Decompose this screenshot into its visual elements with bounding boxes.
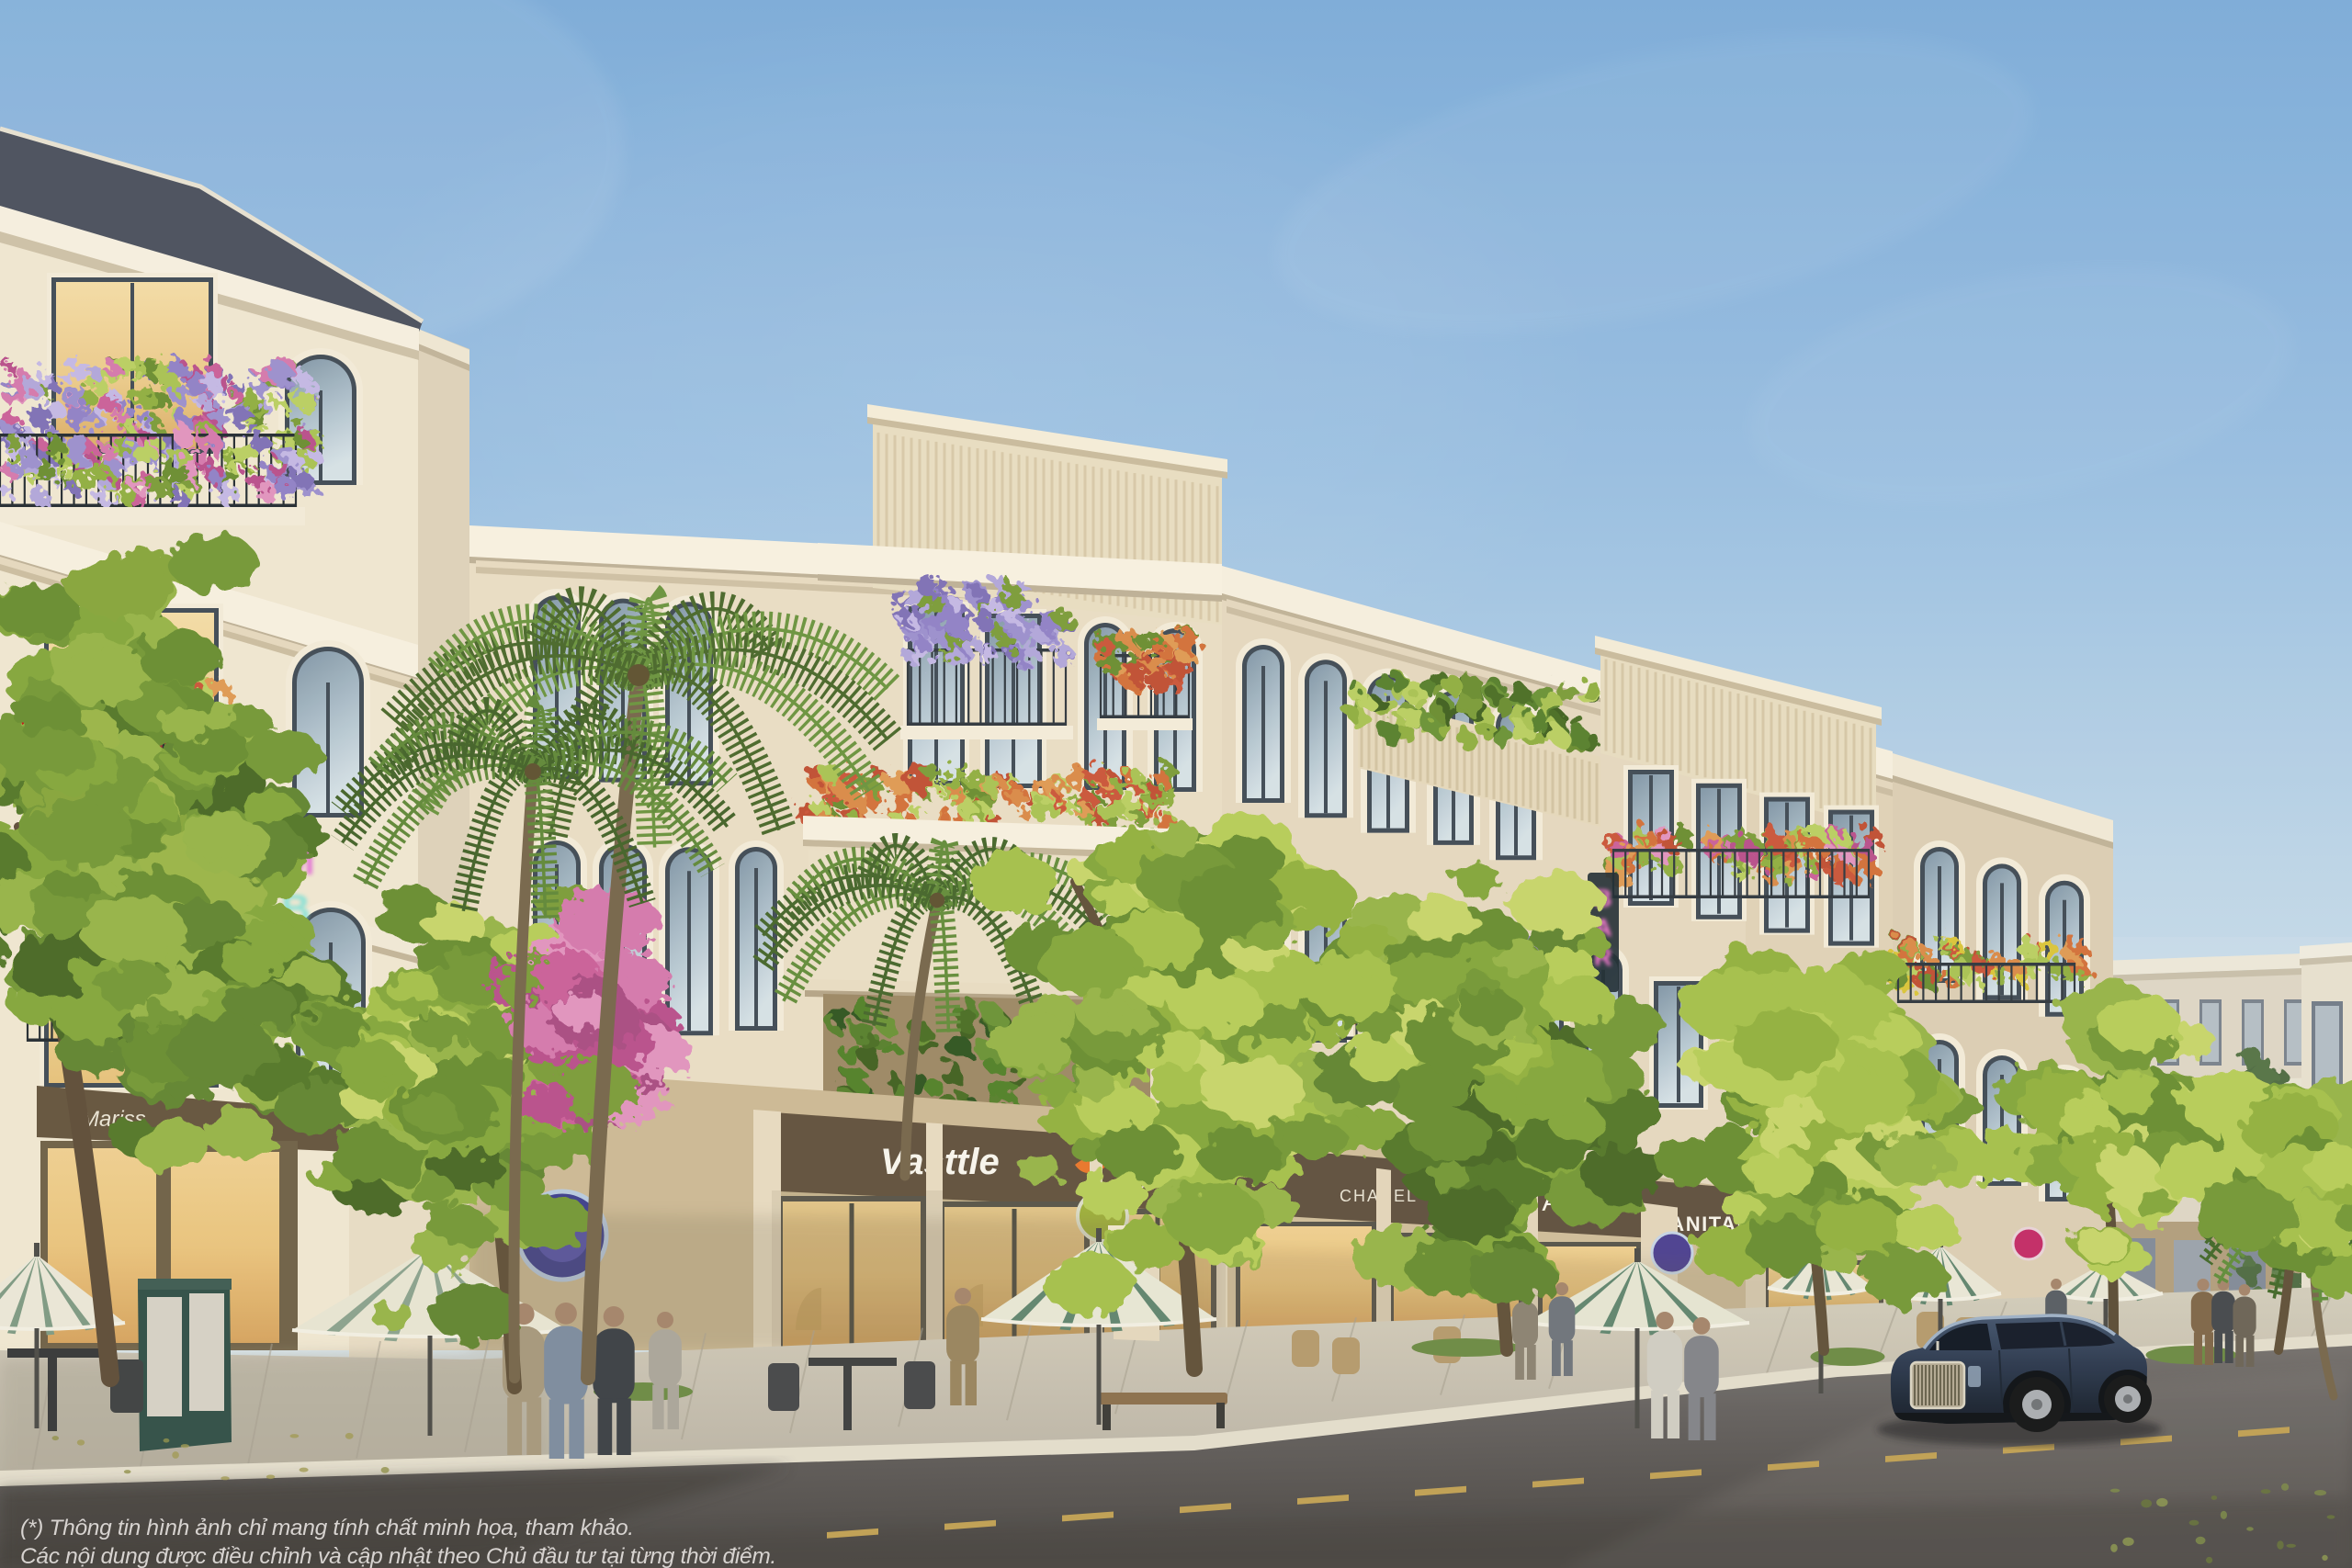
svg-text:Các nội dung được điều chỉnh v: Các nội dung được điều chỉnh và cập nhật… bbox=[20, 1544, 776, 1568]
svg-text:(*) Thông tin hình ảnh chỉ man: (*) Thông tin hình ảnh chỉ mang tính chấ… bbox=[20, 1516, 634, 1540]
